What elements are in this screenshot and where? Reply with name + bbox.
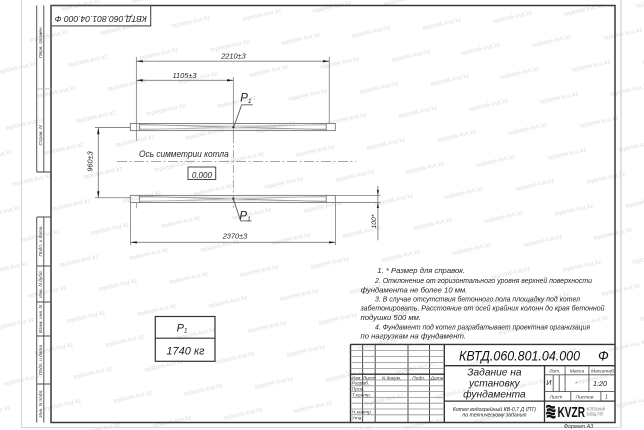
svg-text:teplotek-kvz.kz: teplotek-kvz.kz [137, 303, 177, 318]
svg-text:Формат А3: Формат А3 [564, 424, 594, 430]
svg-text:teplotek-kvz.kz: teplotek-kvz.kz [239, 264, 279, 279]
svg-text:teplotek-kvz.kz: teplotek-kvz.kz [0, 405, 11, 420]
svg-text:teplotek-kvz.kz: teplotek-kvz.kz [635, 0, 644, 10]
svg-text:teplotek-kvz.kz: teplotek-kvz.kz [68, 54, 108, 69]
svg-text:Подп.: Подп. [412, 375, 425, 381]
svg-text:Н.контр.: Н.контр. [352, 410, 372, 416]
svg-text:teplotek-kvz.kz: teplotek-kvz.kz [29, 29, 69, 44]
svg-text:teplotek-kvz.kz: teplotek-kvz.kz [366, 137, 406, 152]
svg-text:Инв. N дубл.: Инв. N дубл. [38, 270, 44, 298]
svg-text:Листов: Листов [575, 395, 594, 401]
svg-text:teplotek-kvz.kz: teplotek-kvz.kz [571, 59, 611, 74]
svg-text:Р1: Р1 [240, 92, 252, 105]
svg-text:teplotek-kvz.kz: teplotek-kvz.kz [632, 251, 644, 266]
svg-text:4. Фундамент под котел разраба: 4. Фундамент под котел разрабатывает про… [375, 322, 590, 331]
svg-text:teplotek-kvz.kz: teplotek-kvz.kz [493, 10, 533, 25]
svg-text:teplotek-kvz.kz: teplotek-kvz.kz [461, 42, 501, 57]
svg-text:teplotek-kvz.kz: teplotek-kvz.kz [100, 22, 140, 37]
svg-text:teplotek-kvz.kz: teplotek-kvz.kz [523, 234, 563, 249]
svg-text:teplotek-kvz.kz: teplotek-kvz.kz [115, 134, 155, 149]
svg-text:teplotek-kvz.kz: teplotek-kvz.kz [247, 320, 287, 335]
svg-text:teplotek-kvz.kz: teplotek-kvz.kz [76, 110, 116, 125]
svg-text:teplotek-kvz.kz: teplotek-kvz.kz [271, 232, 311, 247]
svg-text:по нагрузкам на фундамент.: по нагрузкам на фундамент. [361, 331, 466, 340]
svg-text:Утв.: Утв. [352, 416, 363, 422]
svg-text:teplotek-kvz.kz: teplotek-kvz.kz [586, 171, 626, 186]
svg-text:teplotek-kvz.kz: teplotek-kvz.kz [293, 400, 333, 415]
svg-text:teplotek-kvz.kz: teplotek-kvz.kz [454, 0, 494, 1]
svg-text:teplotek-kvz.kz: teplotek-kvz.kz [603, 27, 643, 42]
svg-text:Пров.: Пров. [352, 387, 365, 393]
svg-text:teplotek-kvz.kz: teplotek-kvz.kz [469, 98, 509, 113]
svg-text:1740 кг: 1740 кг [166, 345, 205, 357]
svg-text:teplotek-kvz.kz: teplotek-kvz.kz [0, 61, 37, 76]
svg-text:teplotek-kvz.kz: teplotek-kvz.kz [318, 312, 358, 327]
svg-text:teplotek-kvz.kz: teplotek-kvz.kz [59, 254, 99, 269]
svg-text:teplotek-kvz.kz: teplotek-kvz.kz [0, 317, 35, 332]
svg-text:Масштаб: Масштаб [591, 368, 614, 374]
svg-text:teplotek-kvz.kz: teplotek-kvz.kz [254, 376, 294, 391]
svg-text:teplotek-kvz.kz: teplotek-kvz.kz [500, 66, 540, 81]
svg-text:teplotek-kvz.kz: teplotek-kvz.kz [539, 91, 579, 106]
svg-text:Ось симметрии котла: Ось симметрии котла [139, 149, 229, 159]
svg-text:Перв. примен.: Перв. примен. [38, 26, 44, 58]
svg-text:Изм.: Изм. [351, 375, 361, 381]
svg-text:teplotek-kvz.kz: teplotek-kvz.kz [381, 249, 421, 264]
svg-text:teplotek-kvz.kz: teplotek-kvz.kz [90, 222, 130, 237]
svg-text:teplotek-kvz.kz: teplotek-kvz.kz [281, 32, 321, 47]
svg-text:1105±3: 1105±3 [172, 71, 197, 80]
svg-text:установку: установку [468, 379, 521, 390]
svg-text:0,000: 0,000 [192, 171, 213, 180]
svg-text:teplotek-kvz.kz: teplotek-kvz.kz [200, 239, 240, 254]
svg-text:КВТД.060.801.04.000 Ф: КВТД.060.801.04.000 Ф [54, 14, 147, 23]
svg-text:teplotek-kvz.kz: teplotek-kvz.kz [223, 407, 263, 422]
svg-text:teplotek-kvz.kz: teplotek-kvz.kz [554, 203, 594, 218]
svg-text:teplotek-kvz.kz: teplotek-kvz.kz [242, 8, 282, 23]
svg-text:КВТД.060.801.04.000: КВТД.060.801.04.000 [459, 349, 580, 364]
svg-text:teplotek-kvz.kz: teplotek-kvz.kz [312, 0, 352, 15]
svg-text:teplotek-kvz.kz: teplotek-kvz.kz [286, 344, 326, 359]
svg-text:teplotek-kvz.kz: teplotek-kvz.kz [430, 73, 470, 88]
svg-text:teplotek-kvz.kz: teplotek-kvz.kz [27, 285, 67, 300]
svg-text:teplotek-kvz.kz: teplotek-kvz.kz [42, 398, 82, 413]
svg-text:teplotek-kvz.kz: teplotek-kvz.kz [335, 169, 375, 184]
svg-text:KVZR: KVZR [558, 405, 586, 421]
svg-text:teplotek-kvz.kz: teplotek-kvz.kz [61, 0, 101, 13]
svg-text:teplotek-kvz.kz: teplotek-kvz.kz [132, 0, 172, 5]
svg-text:teplotek-kvz.kz: teplotek-kvz.kz [320, 56, 360, 71]
svg-text:teplotek-kvz.kz: teplotek-kvz.kz [508, 122, 548, 137]
svg-text:teplotek-kvz.kz: teplotek-kvz.kz [44, 142, 84, 157]
svg-text:teplotek-kvz.kz: teplotek-kvz.kz [295, 144, 335, 159]
svg-text:teplotek-kvz.kz: teplotek-kvz.kz [359, 81, 399, 96]
svg-text:1:20: 1:20 [593, 379, 607, 388]
svg-text:teplotek-kvz.kz: teplotek-kvz.kz [351, 25, 391, 40]
svg-text:teplotek-kvz.kz: teplotek-kvz.kz [105, 334, 145, 349]
svg-text:Подп. и дата: Подп. и дата [38, 345, 44, 375]
svg-text:teplotek-kvz.kz: teplotek-kvz.kz [618, 139, 644, 154]
svg-text:teplotek-kvz.kz: teplotek-kvz.kz [444, 186, 484, 201]
svg-text:teplotek-kvz.kz: teplotek-kvz.kz [625, 195, 644, 210]
svg-text:teplotek-kvz.kz: teplotek-kvz.kz [215, 351, 255, 366]
svg-text:teplotek-kvz.kz: teplotek-kvz.kz [422, 17, 462, 32]
svg-text:teplotek-kvz.kz: teplotek-kvz.kz [225, 151, 265, 166]
svg-text:teplotek-kvz.kz: teplotek-kvz.kz [547, 147, 587, 162]
svg-text:Масса: Масса [570, 368, 585, 374]
svg-text:teplotek-kvz.kz: teplotek-kvz.kz [185, 127, 225, 142]
svg-text:Дата: Дата [430, 375, 444, 381]
svg-text:teplotek-kvz.kz: teplotek-kvz.kz [98, 278, 138, 293]
svg-text:забетонировать. Расстояние от: забетонировать. Расстояние от осей крайн… [360, 304, 606, 313]
svg-text:teplotek-kvz.kz: teplotek-kvz.kz [0, 149, 13, 164]
svg-text:teplotek-kvz.kz: teplotek-kvz.kz [640, 308, 644, 323]
svg-text:по техническому заданию: по техническому заданию [462, 413, 526, 419]
svg-text:teplotek-kvz.kz: teplotek-kvz.kz [169, 271, 209, 286]
svg-text:teplotek-kvz.kz: teplotek-kvz.kz [113, 390, 153, 405]
svg-text:teplotek-kvz.kz: teplotek-kvz.kz [81, 422, 121, 430]
svg-text:teplotek-kvz.kz: teplotek-kvz.kz [37, 85, 77, 100]
svg-text:teplotek-kvz.kz: teplotek-kvz.kz [139, 47, 179, 62]
svg-text:Инв. N подл.: Инв. N подл. [38, 389, 44, 417]
svg-text:2210±3: 2210±3 [220, 52, 246, 61]
svg-text:teplotek-kvz.kz: teplotek-kvz.kz [310, 256, 350, 271]
svg-text:teplotek-kvz.kz: teplotek-kvz.kz [532, 34, 572, 49]
svg-text:teplotek-kvz.kz: teplotek-kvz.kz [562, 259, 602, 274]
svg-text:фундамента не более 10 мм.: фундамента не более 10 мм. [361, 285, 468, 294]
svg-text:Взам. инв. N: Взам. инв. N [38, 305, 44, 333]
svg-text:Разраб.: Разраб. [352, 381, 369, 387]
svg-text:teplotek-kvz.kz: teplotek-kvz.kz [264, 176, 304, 191]
svg-text:teplotek-kvz.kz: teplotek-kvz.kz [249, 64, 289, 79]
svg-text:teplotek-kvz.kz: teplotek-kvz.kz [327, 112, 367, 127]
svg-text:teplotek-kvz.kz: teplotek-kvz.kz [171, 15, 211, 30]
svg-text:teplotek-kvz.kz: teplotek-kvz.kz [51, 198, 91, 213]
svg-text:teplotek-kvz.kz: teplotek-kvz.kz [288, 88, 328, 103]
svg-text:teplotek-kvz.kz: teplotek-kvz.kz [183, 383, 223, 398]
svg-text:teplotek-kvz.kz: teplotek-kvz.kz [413, 217, 453, 232]
svg-text:Справ. N: Справ. N [38, 125, 44, 146]
svg-text:teplotek-kvz.kz: teplotek-kvz.kz [398, 105, 438, 120]
svg-text:teplotek-kvz.kz: teplotek-kvz.kz [146, 103, 186, 118]
svg-text:Т.контр.: Т.контр. [352, 392, 371, 398]
svg-text:Лит.: Лит. [548, 368, 560, 374]
svg-text:2. Отклонение от горизонтально: 2. Отклонение от горизонтального уровня … [374, 276, 593, 285]
svg-text:Лист: Лист [549, 395, 563, 401]
svg-text:teplotek-kvz.kz: teplotek-kvz.kz [608, 339, 644, 354]
svg-text:2370±3: 2370±3 [222, 231, 248, 240]
svg-text:teplotek-kvz.kz: teplotek-kvz.kz [484, 210, 524, 225]
svg-text:teplotek-kvz.kz: teplotek-kvz.kz [66, 310, 106, 325]
svg-text:Лист: Лист [362, 375, 375, 381]
svg-text:Ф: Ф [598, 349, 609, 364]
svg-text:teplotek-kvz.kz: teplotek-kvz.kz [437, 129, 477, 144]
svg-text:ЗАВОД. РЭП: ЗАВОД. РЭП [587, 412, 604, 417]
svg-text:teplotek-kvz.kz: teplotek-kvz.kz [129, 247, 169, 262]
svg-text:Подп. и дата: Подп. и дата [38, 226, 44, 256]
svg-text:teplotek-kvz.kz: teplotek-kvz.kz [403, 417, 443, 430]
svg-text:teplotek-kvz.kz: teplotek-kvz.kz [391, 49, 431, 64]
svg-text:teplotek-kvz.kz: teplotek-kvz.kz [0, 261, 28, 276]
svg-text:teplotek-kvz.kz: teplotek-kvz.kz [161, 215, 201, 230]
svg-text:teplotek-kvz.kz: teplotek-kvz.kz [405, 161, 445, 176]
svg-text:teplotek-kvz.kz: teplotek-kvz.kz [0, 205, 21, 220]
svg-text:Задание на: Задание на [467, 368, 522, 379]
svg-text:teplotek-kvz.kz: teplotek-kvz.kz [73, 366, 113, 381]
svg-text:подушки 500 мм.: подушки 500 мм. [361, 313, 422, 322]
svg-text:teplotek-kvz.kz: teplotek-kvz.kz [476, 154, 516, 169]
svg-text:teplotek-kvz.kz: teplotek-kvz.kz [593, 227, 633, 242]
svg-text:teplotek-kvz.kz: teplotek-kvz.kz [452, 242, 492, 257]
svg-text:960±3: 960±3 [85, 150, 94, 171]
svg-text:3. В случае отсутствия бетонно: 3. В случае отсутствия бетонного пола пл… [375, 295, 581, 304]
svg-text:teplotek-kvz.kz: teplotek-kvz.kz [383, 0, 423, 8]
svg-text:teplotek-kvz.kz: teplotek-kvz.kz [579, 115, 619, 130]
svg-text:N докум.: N докум. [382, 375, 401, 381]
svg-text:teplotek-kvz.kz: teplotek-kvz.kz [12, 173, 52, 188]
svg-text:фундамента: фундамента [463, 389, 526, 401]
svg-text:Р1: Р1 [177, 322, 188, 334]
svg-text:100*: 100* [371, 214, 378, 228]
svg-text:1: 1 [605, 395, 608, 401]
svg-text:1. * Размер для справок.: 1. * Размер для справок. [377, 266, 465, 275]
svg-text:teplotek-kvz.kz: teplotek-kvz.kz [208, 295, 248, 310]
svg-text:teplotek-kvz.kz: teplotek-kvz.kz [515, 178, 555, 193]
svg-text:И: И [546, 380, 552, 387]
svg-text:teplotek-kvz.kz: teplotek-kvz.kz [279, 288, 319, 303]
